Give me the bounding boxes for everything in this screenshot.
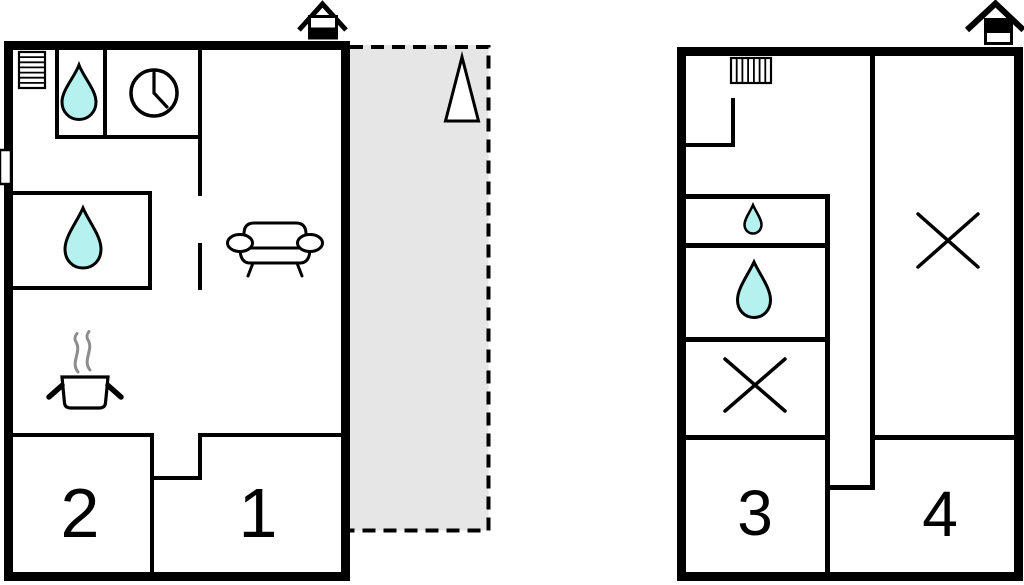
pot-body [62,377,108,408]
entrance-house-icon [299,4,346,40]
radiator-icon [731,58,771,83]
radiator-icon [19,52,45,88]
left-building: 2 1 [0,4,489,577]
window-icon [0,150,11,184]
entrance-body-black-band [984,19,1013,33]
entrance-body-black-band [308,28,338,40]
floor-plan: 2 1 3 4 [0,0,1024,585]
room-label-2: 2 [61,474,100,552]
terrace [348,45,489,531]
right-building: 3 4 [682,4,1024,577]
left-outer-walls [9,46,346,577]
clock-icon [131,70,177,116]
room-label-3: 3 [737,477,773,549]
room-label-1: 1 [239,474,278,552]
entrance-house-icon [967,4,1024,44]
room-label-4: 4 [922,478,958,550]
